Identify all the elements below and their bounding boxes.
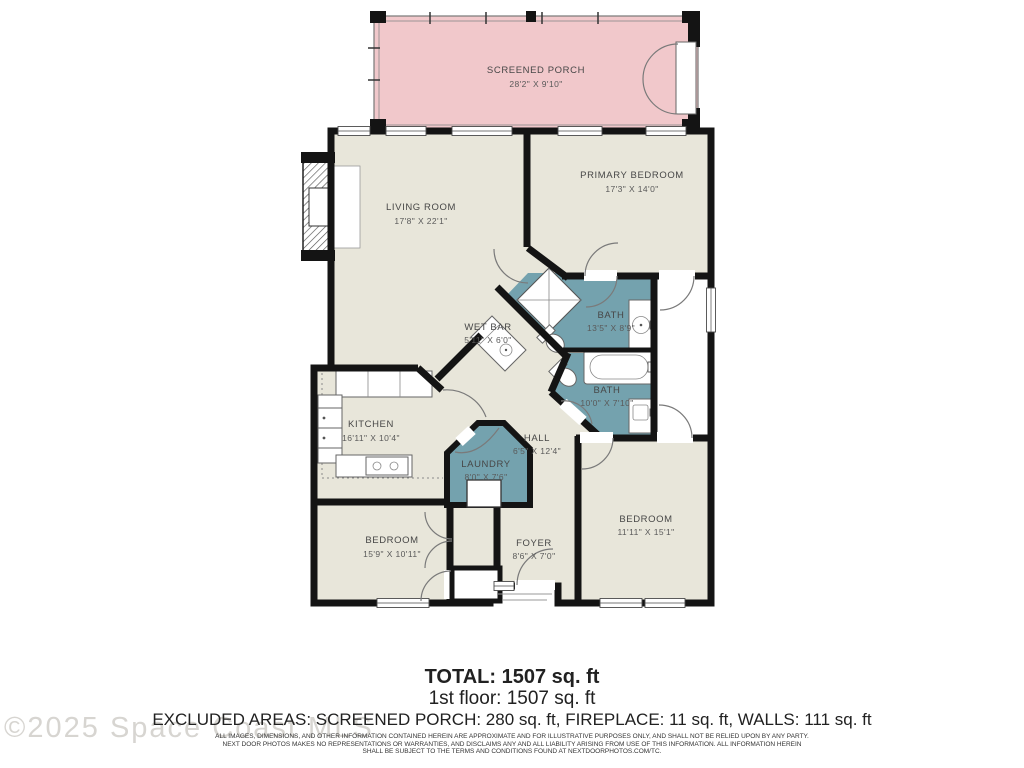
room-label-screened-porch: SCREENED PORCH: [487, 65, 585, 76]
room-label-living-room: LIVING ROOM: [386, 202, 456, 213]
disclaimer-line-1: ALL IMAGES, DIMENSIONS, AND OTHER INFORM…: [0, 733, 1024, 741]
french-door-panel: [676, 42, 696, 114]
room-dims-kitchen: 16'11" X 10'4": [342, 433, 400, 443]
disclaimer-text: ALL IMAGES, DIMENSIONS, AND OTHER INFORM…: [0, 733, 1024, 756]
window: [338, 127, 370, 136]
total-area-text: TOTAL: 1507 sq. ft: [0, 666, 1024, 688]
room-dims-bedroom-right: 11'11" X 15'1": [617, 527, 674, 537]
room-label-bath-2: BATH: [593, 385, 620, 396]
room-label-bedroom-left: BEDROOM: [365, 535, 418, 546]
window: [558, 127, 602, 136]
kitchen-appliance: [318, 428, 342, 448]
window: [646, 127, 686, 136]
entry-closet: [452, 568, 500, 601]
kitchen-appliance: [318, 408, 342, 428]
disclaimer-line-3: SHALL BE SUBJECT TO THE TERMS AND CONDIT…: [0, 748, 1024, 756]
room-dims-living-room: 17'8" X 22'1": [394, 216, 447, 226]
fireplace-hearth: [334, 166, 360, 248]
area-summary: TOTAL: 1507 sq. ft 1st floor: 1507 sq. f…: [0, 666, 1024, 756]
room-label-foyer: FOYER: [516, 538, 552, 549]
bathtub-icon: [584, 350, 654, 384]
room-label-primary-bedroom: PRIMARY BEDROOM: [580, 170, 684, 181]
room-dims-hall: 6'5" X 12'4": [513, 446, 561, 456]
window: [494, 582, 514, 591]
front-steps: [498, 594, 552, 600]
room-label-bedroom-right: BEDROOM: [619, 514, 672, 525]
floor-plan-svg: SCREENED PORCH 28'2" X 9'10" LIVING ROOM…: [0, 0, 1024, 768]
first-floor-area-text: 1st floor: 1507 sq. ft: [0, 688, 1024, 710]
room-label-wet-bar: WET BAR: [464, 322, 511, 333]
room-dims-bath-1: 13'5" X 8'9": [587, 323, 635, 333]
room-label-kitchen: KITCHEN: [348, 419, 394, 430]
room-dims-laundry: 8'0" X 7'6": [465, 472, 508, 482]
disclaimer-line-2: NEXT DOOR PHOTOS MAKES NO REPRESENTATION…: [0, 741, 1024, 749]
room-label-bath-1: BATH: [597, 310, 624, 321]
window: [707, 288, 716, 332]
window: [386, 127, 426, 136]
room-dims-bath-2: 10'0" X 7'10": [580, 398, 633, 408]
room-label-hall: HALL: [524, 433, 550, 444]
room-label-laundry: LAUNDRY: [461, 459, 510, 470]
excluded-areas-text: EXCLUDED AREAS: SCREENED PORCH: 280 sq. …: [0, 710, 1024, 730]
window: [645, 599, 685, 608]
closet-strip: [657, 279, 708, 435]
window: [452, 127, 512, 136]
washer-icon: [467, 480, 501, 507]
floorplan-page: SCREENED PORCH 28'2" X 9'10" LIVING ROOM…: [0, 0, 1024, 768]
window: [600, 599, 642, 608]
room-dims-wet-bar: 5'11" X 6'0": [464, 335, 511, 345]
room-dims-primary-bedroom: 17'3" X 14'0": [605, 184, 658, 194]
room-dims-screened-porch: 28'2" X 9'10": [509, 79, 562, 89]
room-dims-bedroom-left: 15'9" X 10'11": [363, 549, 421, 559]
stove-icon: [366, 457, 408, 475]
room-dims-foyer: 8'6" X 7'0": [513, 551, 556, 561]
